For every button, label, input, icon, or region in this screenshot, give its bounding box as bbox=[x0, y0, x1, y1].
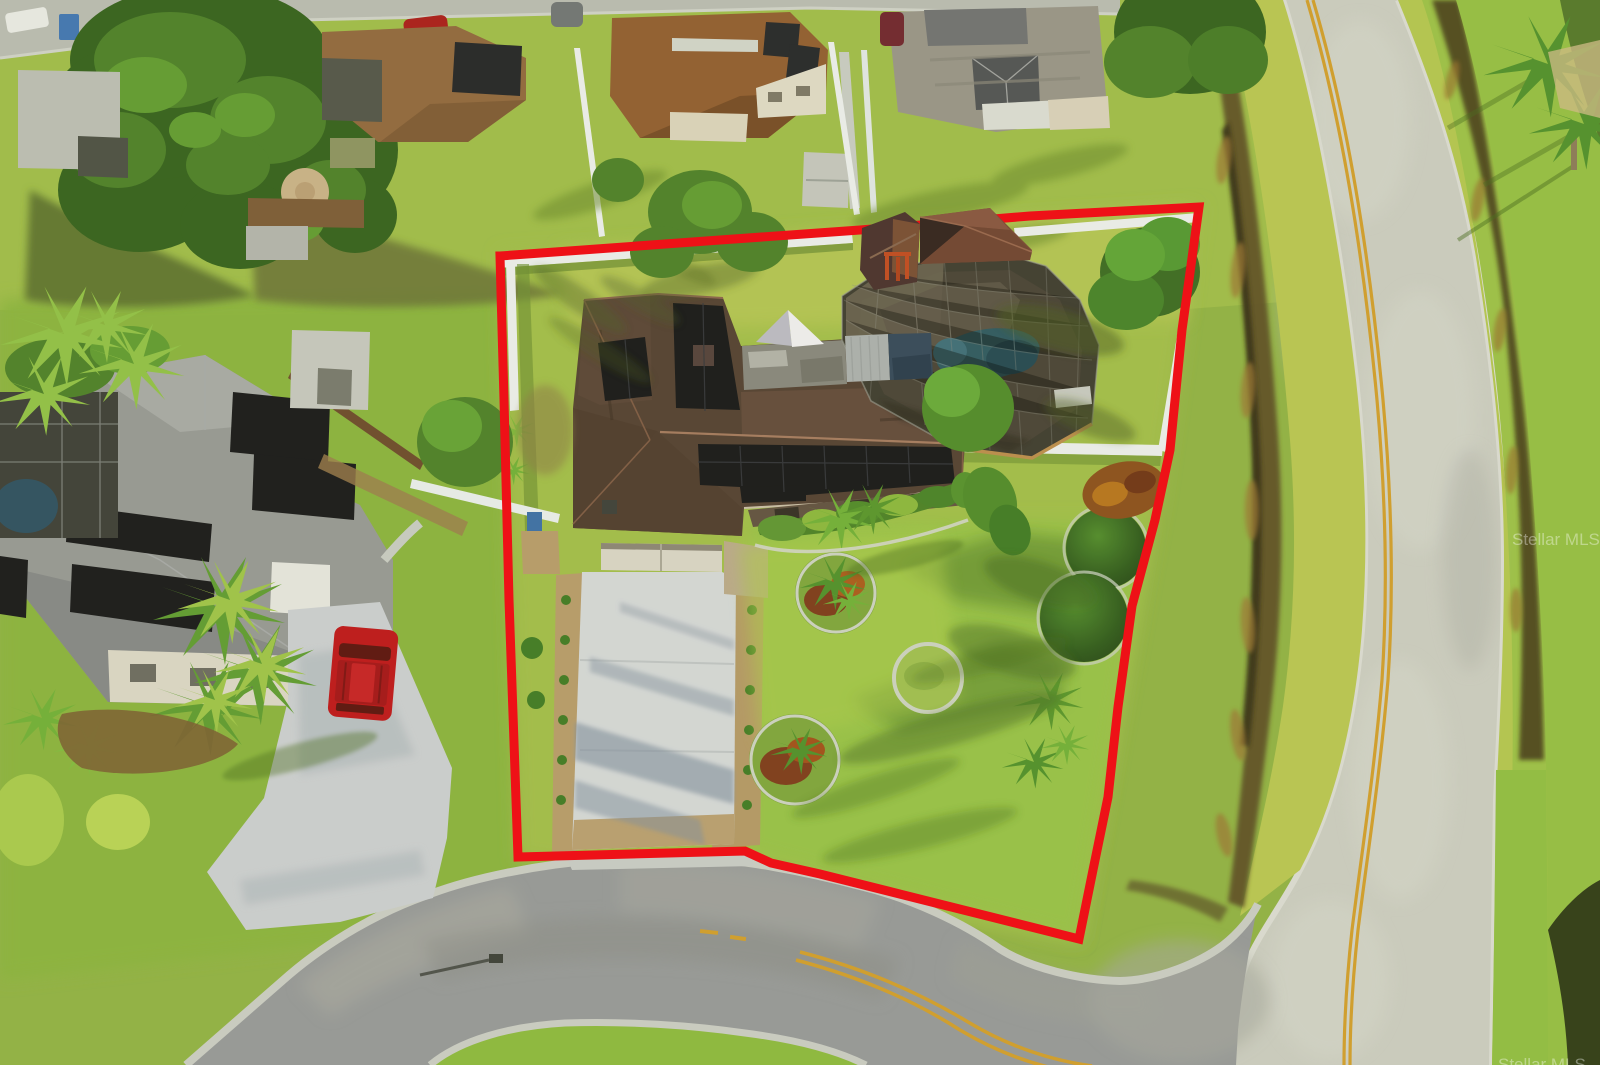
svg-text:Stellar MLS: Stellar MLS bbox=[1498, 1055, 1586, 1065]
svg-text:Stellar MLS: Stellar MLS bbox=[1512, 530, 1600, 549]
